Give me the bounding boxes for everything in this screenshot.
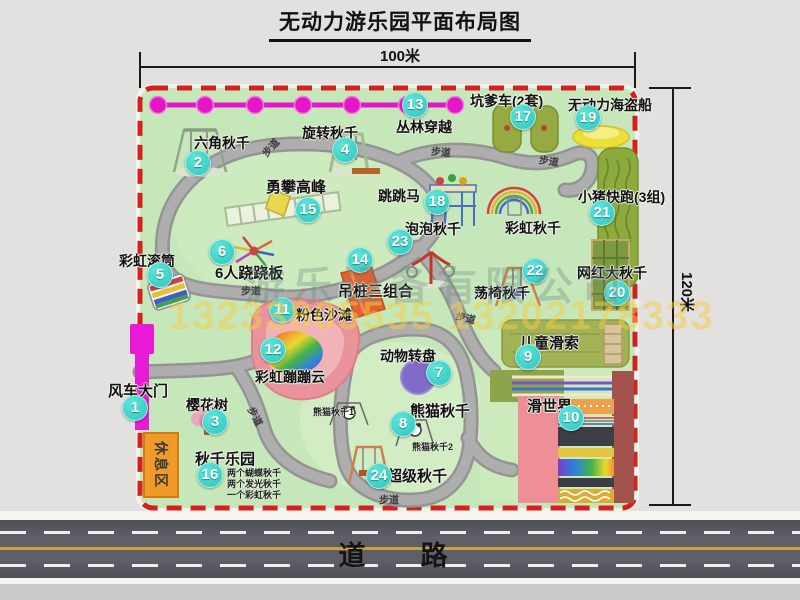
attraction-number-badge: 19: [575, 105, 601, 131]
attraction-number-badge: 18: [424, 189, 450, 215]
walkway-label: 步道: [258, 135, 283, 160]
rest-area-label: 休息区: [151, 441, 171, 489]
walkway-label: 步道: [241, 283, 261, 298]
attraction-number-badge: 8: [390, 411, 416, 437]
road-label: 道 路: [0, 534, 800, 573]
below-road-ground: [0, 584, 800, 600]
attraction-number-badge: 13: [402, 92, 428, 118]
attraction-number-badge: 3: [202, 409, 228, 435]
attraction-number-badge: 15: [295, 197, 321, 223]
attraction-number-badge: 17: [510, 104, 536, 130]
attraction-number-badge: 14: [347, 247, 373, 273]
walkway-label: 步道: [431, 143, 452, 159]
park-plan-image: 无动力游乐园平面布局图 100米 120米: [0, 0, 800, 600]
bubble-swing-icon: [407, 252, 454, 288]
attraction-number-badge: 5: [147, 262, 173, 288]
attraction-label: 荡椅秋千: [474, 283, 530, 303]
attraction-number-badge: 2: [185, 150, 211, 176]
walkway-paths: [140, 144, 592, 500]
walkway-label: 步道: [379, 492, 399, 507]
attraction-number-badge: 11: [269, 297, 295, 323]
attraction-number-badge: 23: [387, 229, 413, 255]
road-top-margin: [0, 511, 800, 520]
attraction-number-badge: 1: [122, 395, 148, 421]
attraction-sub-label: 一个彩虹秋千: [227, 488, 281, 501]
attraction-number-badge: 10: [558, 405, 584, 431]
attraction-number-badge: 16: [197, 462, 223, 488]
attraction-label: 勇攀高峰: [266, 176, 326, 197]
attraction-label: 6人跷跷板: [215, 262, 283, 283]
attraction-number-badge: 20: [604, 280, 630, 306]
attraction-label: 粉色沙滩: [296, 305, 352, 325]
attraction-label: 熊猫秋千: [410, 400, 470, 421]
attraction-number-badge: 9: [515, 344, 541, 370]
attraction-sub-label: 熊猫秋千2: [412, 440, 453, 453]
attraction-label: 吊桩三组合: [338, 280, 413, 301]
dimension-label-width: 100米: [355, 45, 445, 66]
attraction-label: 彩虹蹦蹦云: [255, 367, 325, 387]
attraction-number-badge: 21: [589, 200, 615, 226]
attraction-label: 泡泡秋千: [405, 219, 461, 239]
rest-area-box: 休息区: [143, 432, 179, 498]
attraction-number-badge: 6: [209, 239, 235, 265]
attraction-number-badge: 4: [332, 137, 358, 163]
rainbow-swing-icon: [488, 188, 540, 215]
attraction-number-badge: 12: [260, 337, 286, 363]
dimension-label-height: 120米: [677, 272, 698, 312]
page-title: 无动力游乐园平面布局图: [269, 6, 531, 42]
attraction-number-badge: 24: [366, 463, 392, 489]
attraction-number-badge: 22: [522, 258, 548, 284]
road: 道 路: [0, 520, 800, 578]
walkway-label: 步道: [245, 404, 268, 429]
watermark-phone: 13233805535 13202178333: [168, 294, 715, 339]
attraction-label: 跳跳马: [378, 186, 420, 206]
attraction-sub-label: 熊猫秋千1: [313, 405, 354, 418]
attraction-label: 丛林穿越: [396, 117, 452, 137]
attraction-label: 动物转盘: [380, 346, 436, 366]
watermark-company: 游乐设备有限公司: [245, 254, 629, 312]
slide-world-icon: [490, 370, 634, 503]
attraction-label: 彩虹秋千: [505, 218, 561, 238]
attraction-number-badge: 7: [426, 360, 452, 386]
walkway-label: 步道: [454, 307, 477, 326]
walkway-label: 步道: [538, 151, 560, 169]
attraction-label: 超级秋千: [387, 465, 447, 486]
